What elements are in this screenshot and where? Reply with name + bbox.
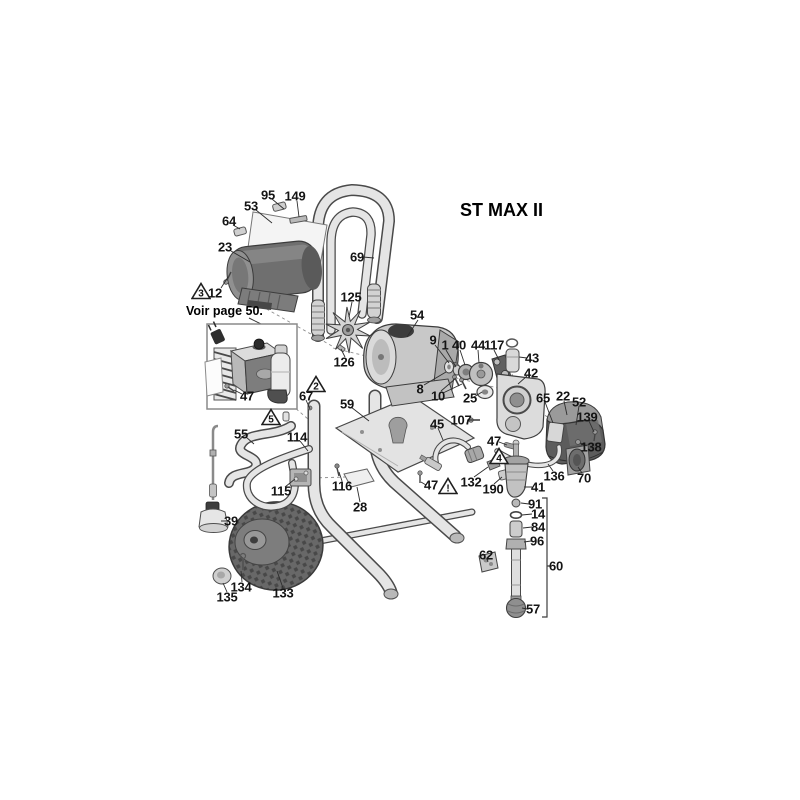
key-126 — [337, 345, 345, 352]
cylinder-84 — [510, 521, 522, 537]
page-title: ST MAX II — [460, 200, 543, 221]
wheel-133 — [213, 496, 329, 596]
suction-tube-39 — [199, 426, 228, 533]
filter-70 — [566, 445, 590, 475]
part-43 — [506, 349, 519, 372]
panel-65 — [547, 422, 564, 443]
nut-96 — [506, 539, 526, 549]
suction-tube-60 — [512, 549, 521, 597]
pad-28 — [344, 469, 374, 487]
parts-diagram-page: 9514953642312691255412691404411743428102… — [0, 0, 800, 800]
exploded-diagram — [0, 0, 800, 800]
inset-box — [205, 318, 312, 421]
fitting-132 — [487, 458, 500, 470]
clip-62 — [479, 552, 498, 572]
oring-14 — [511, 512, 522, 518]
nut-91 — [512, 499, 520, 507]
group-bracket-60 — [542, 498, 551, 617]
see-page-note: Voir page 50. — [186, 304, 263, 318]
drain-tube-55 — [229, 422, 311, 507]
handle-69 — [312, 190, 390, 341]
pump-housing-42 — [497, 374, 545, 439]
